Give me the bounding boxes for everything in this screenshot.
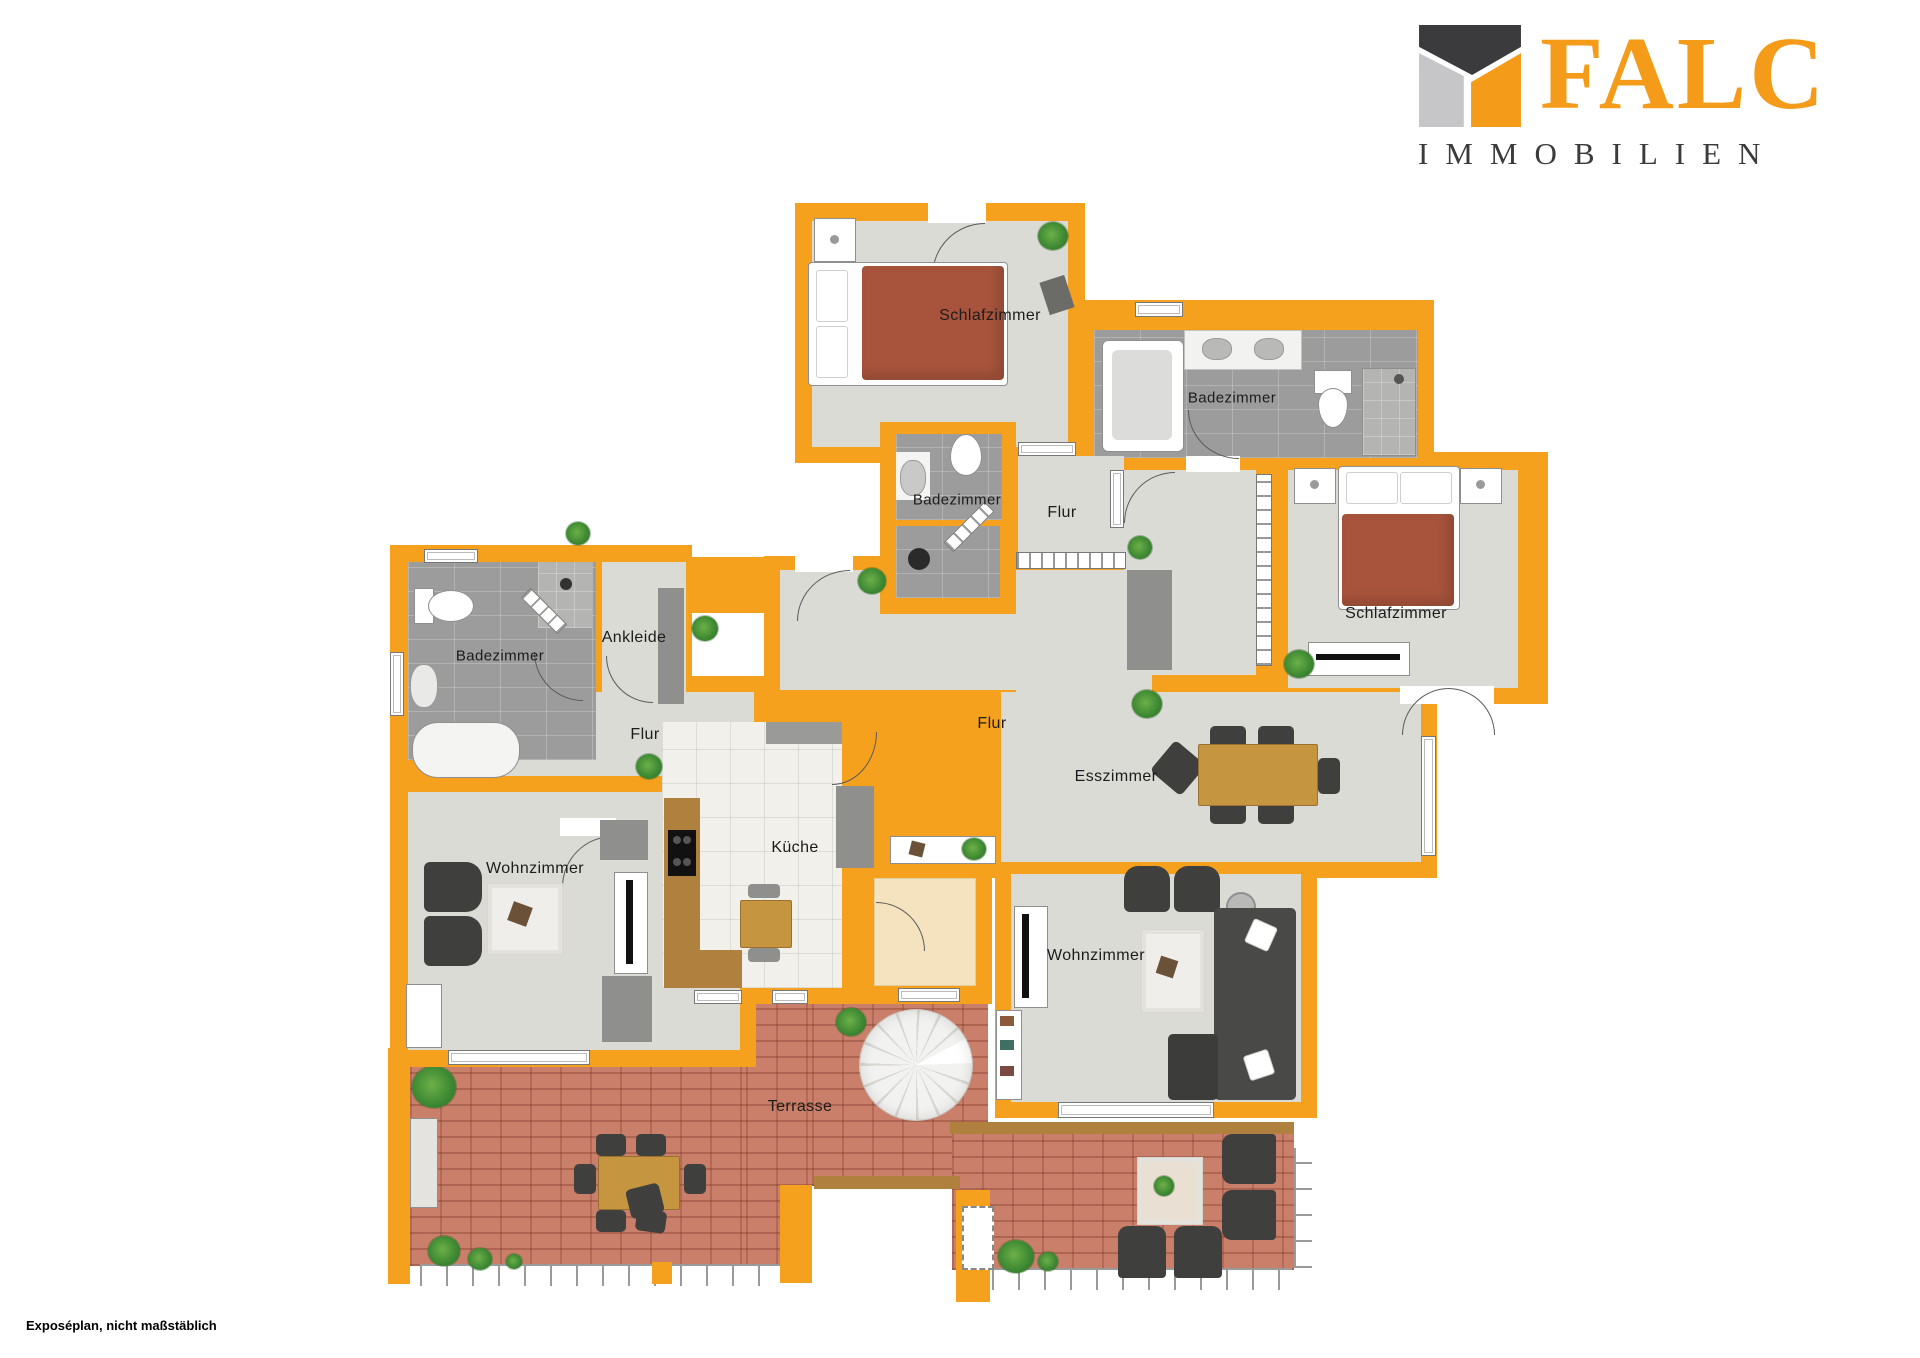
books: [1000, 1066, 1014, 1076]
glass-partition: [1256, 474, 1272, 666]
label-schlafzimmer-right: Schlafzimmer: [1345, 605, 1447, 623]
plant: [1128, 536, 1152, 559]
spiral-staircase: [860, 1010, 972, 1120]
terrace-lounge-chair: [1174, 1226, 1222, 1278]
tv: [1316, 654, 1400, 660]
terrace-chair: [684, 1164, 706, 1194]
toilet-bowl: [428, 590, 474, 622]
chimney: [602, 976, 652, 1042]
falc-logo-icon: [1418, 22, 1522, 130]
chimney: [600, 820, 648, 860]
label-ankleide: Ankleide: [602, 629, 667, 647]
plant: [1132, 690, 1162, 718]
label-flur-top: Flur: [1047, 504, 1076, 522]
plant: [1284, 650, 1314, 678]
label-wohnzimmer-right: Wohnzimmer: [1047, 947, 1145, 965]
dining-chair: [1318, 758, 1340, 794]
nightstand-knob: [1310, 480, 1319, 489]
terrace-chair: [596, 1134, 626, 1156]
books: [1000, 1040, 1014, 1050]
books: [1000, 1016, 1014, 1026]
terrace-bush: [1038, 1252, 1058, 1271]
bed-pillow: [816, 326, 848, 378]
freestanding-bathtub: [412, 722, 520, 778]
window: [694, 990, 742, 1004]
label-badezimmer-middle: Badezimmer: [913, 492, 1001, 509]
terrace-planter: [814, 1176, 960, 1189]
kitchen-chair: [748, 884, 780, 898]
burner: [673, 836, 681, 844]
sideboard: [406, 984, 442, 1048]
bed-pillow: [1346, 472, 1398, 504]
label-kueche: Küche: [771, 839, 818, 857]
sink: [1202, 338, 1232, 360]
tv: [626, 880, 633, 964]
sink: [410, 664, 438, 708]
terrace-tree: [412, 1066, 456, 1108]
falc-logo: FALC IMMOBILIEN: [1418, 22, 1898, 172]
window: [1421, 736, 1436, 856]
bed-blanket: [1342, 514, 1454, 606]
window: [390, 652, 404, 716]
armchair: [1174, 866, 1220, 912]
plant: [566, 522, 590, 545]
window: [424, 549, 478, 563]
terrace-bush: [998, 1240, 1034, 1273]
label-schlafzimmer-top: Schlafzimmer: [939, 307, 1041, 325]
terrace-railing-post: [652, 1262, 672, 1284]
bed-pillow: [816, 270, 848, 322]
terrace-rug-plant: [1154, 1176, 1174, 1196]
window: [1110, 470, 1124, 528]
terrace-railing: [1294, 1148, 1312, 1268]
footer-note: Exposéplan, nicht maßstäblich: [26, 1318, 217, 1333]
label-badezimmer-topright: Badezimmer: [1188, 390, 1276, 407]
falc-logo-subtitle: IMMOBILIEN: [1418, 136, 1898, 172]
window: [1058, 1102, 1214, 1118]
vestibule-closet: [1127, 570, 1172, 670]
window: [772, 990, 808, 1004]
toilet-bowl: [950, 434, 982, 476]
plant: [636, 754, 662, 779]
window: [898, 988, 960, 1002]
label-flur-center: Flur: [977, 715, 1006, 733]
kitchen-counter-wood: [664, 950, 742, 988]
shower-drain: [908, 548, 930, 570]
armchair: [1124, 866, 1170, 912]
kitchen-table: [740, 900, 792, 948]
window: [1018, 442, 1076, 456]
terrace-left-wall: [388, 1048, 410, 1284]
door-gap: [928, 203, 986, 223]
burner: [683, 858, 691, 866]
cooktop: [668, 830, 696, 876]
terrace-lounge-chair: [1118, 1226, 1166, 1278]
terrace-post: [780, 1185, 812, 1283]
terrace-bush: [506, 1254, 522, 1269]
label-badezimmer-left: Badezimmer: [456, 648, 544, 665]
entrance-door: [1016, 552, 1126, 569]
plant: [1038, 222, 1068, 250]
kitchen-chair: [748, 948, 780, 962]
terrace-planter: [950, 1122, 1294, 1134]
terrace-bush: [428, 1236, 460, 1266]
sofa-chaise: [1168, 1034, 1218, 1100]
nightstand-knob: [1476, 480, 1485, 489]
terrace-bush: [468, 1248, 492, 1270]
kitchen-counter: [766, 722, 842, 744]
terrace-chair: [596, 1210, 626, 1232]
window: [448, 1050, 590, 1065]
terrace-chair: [574, 1164, 596, 1194]
dining-table: [1198, 744, 1318, 806]
shower-head: [1394, 374, 1404, 384]
terrace-bush: [836, 1008, 866, 1036]
falc-logo-text: FALC: [1540, 22, 1827, 126]
terrace-lounge-chair: [1222, 1190, 1276, 1240]
armchair: [424, 916, 482, 966]
terrace-chair: [636, 1134, 666, 1156]
kitchen-tall-cabinet: [836, 786, 874, 868]
shower: [1362, 368, 1416, 456]
kitchen-counter-wood: [664, 798, 700, 954]
bathtub-inner: [1112, 350, 1172, 440]
floorplan-page: Schlafzimmer Badezimmer Badezimmer Flur …: [0, 0, 1920, 1358]
tv-board: [1014, 906, 1048, 1008]
sink: [1254, 338, 1284, 360]
terrace-door-dashed: [962, 1206, 994, 1270]
label-flur-left: Flur: [630, 726, 659, 744]
terrace-lounge-chair: [1222, 1134, 1276, 1184]
terrace-bench: [410, 1118, 438, 1208]
bed-pillow: [1400, 472, 1452, 504]
plant: [858, 568, 886, 594]
plant: [692, 616, 718, 641]
armchair: [424, 862, 482, 912]
plant: [962, 838, 986, 860]
label-terrasse: Terrasse: [768, 1098, 833, 1116]
burner: [683, 836, 691, 844]
window: [1135, 302, 1183, 317]
label-esszimmer: Esszimmer: [1075, 768, 1158, 786]
label-wohnzimmer-left: Wohnzimmer: [486, 860, 584, 878]
shower-head: [560, 578, 572, 590]
nightstand-knob: [830, 235, 839, 244]
burner: [673, 858, 681, 866]
tv: [1022, 914, 1029, 998]
